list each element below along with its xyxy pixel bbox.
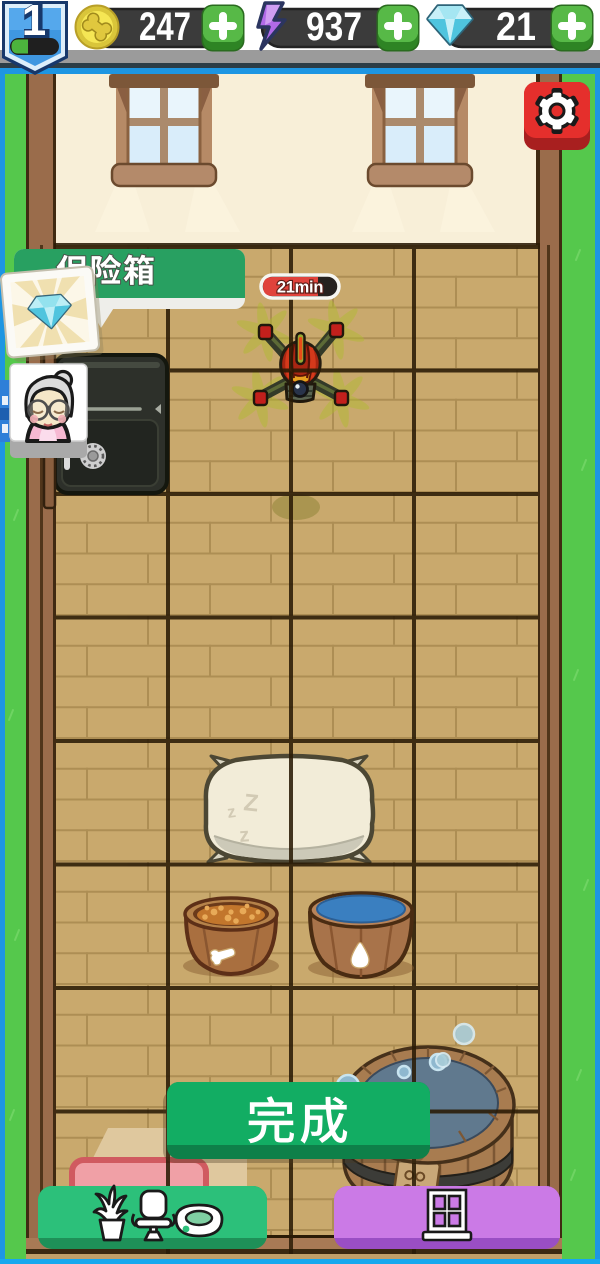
- svg-text:Z: Z: [242, 789, 259, 817]
- svg-text:21: 21: [496, 5, 536, 49]
- svg-text:z: z: [239, 824, 251, 847]
- svg-text:937: 937: [306, 5, 362, 49]
- svg-text:21min: 21min: [277, 279, 323, 297]
- svg-text:247: 247: [139, 5, 191, 49]
